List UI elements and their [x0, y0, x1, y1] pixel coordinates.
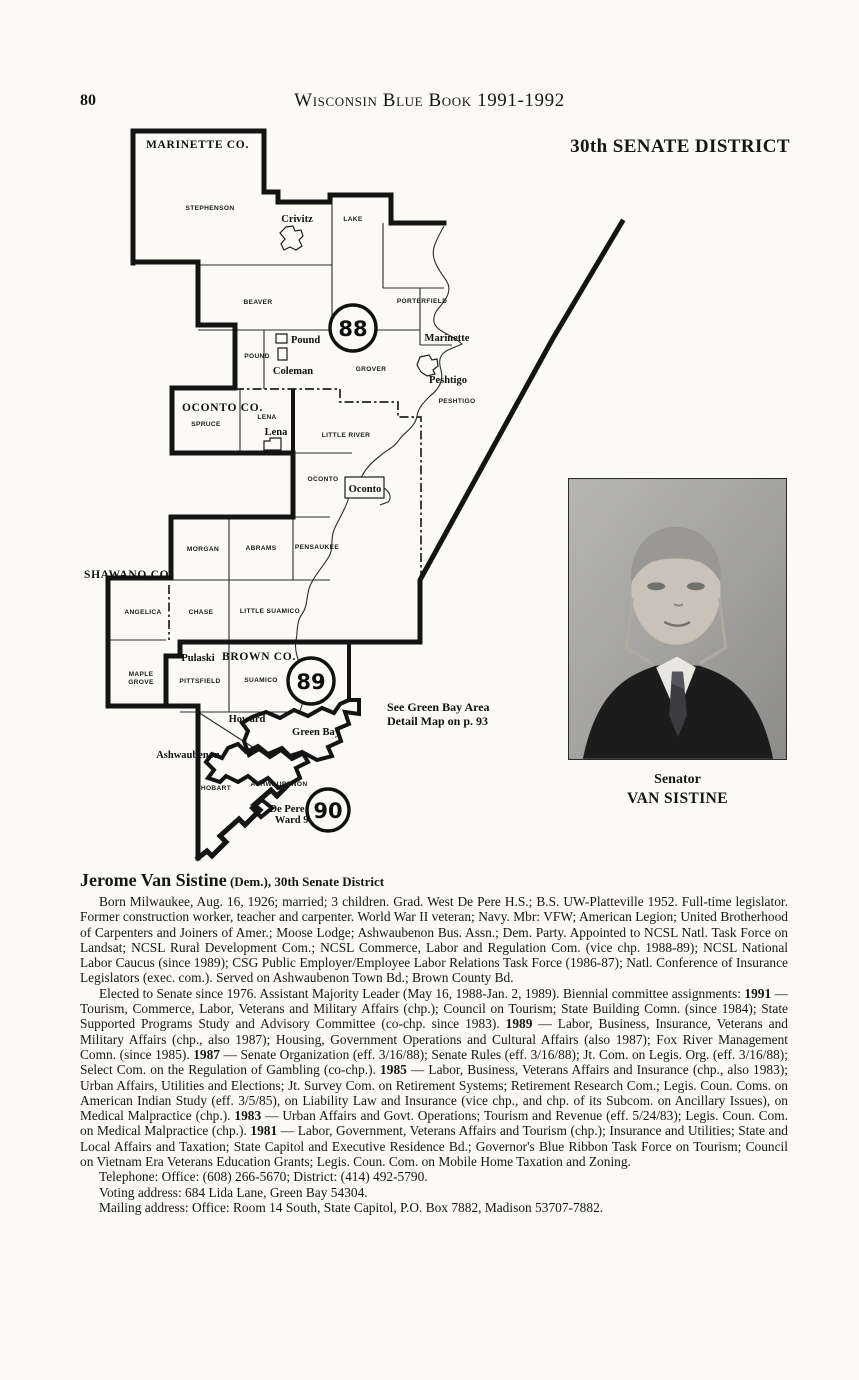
town-label-pound: POUND [244, 353, 270, 360]
town-label-maple-grove-line1: MAPLE [129, 671, 154, 678]
bio-paragraph-committees: Elected to Senate since 1976. Assistant … [80, 986, 788, 1170]
bio-telephone: Telephone: Office: (608) 266-5670; Distr… [80, 1169, 788, 1184]
lena-village-shape [264, 438, 281, 450]
town-label-morgan: MORGAN [187, 546, 219, 553]
place-label-coleman: Coleman [273, 366, 313, 377]
town-label-stephenson: STEPHENSON [186, 205, 235, 212]
place-label-howard: Howard [229, 714, 266, 725]
book-page: 80 Wisconsin Blue Book 1991-1992 30th SE… [0, 0, 859, 1380]
crivitz-village-shape [280, 226, 303, 250]
senator-photo [568, 478, 787, 760]
town-label-beaver: BEAVER [243, 299, 272, 306]
town-label-porterfield: PORTERFIELD [397, 298, 447, 305]
detail-map-note-line1: See Green Bay Area [387, 700, 490, 714]
photo-caption: Senator VAN SISTINE [568, 771, 787, 808]
town-label-lena: LENA [257, 414, 276, 421]
district-89-marker: 89 [288, 658, 334, 704]
district-90-marker: 90 [307, 789, 349, 831]
town-label-little-suamico: LITTLE SUAMICO [240, 608, 300, 615]
county-label-brown: BROWN CO. [222, 651, 296, 663]
town-label-ashwaubenon: ASHWAUBENON [251, 781, 308, 788]
district-90-number: 90 [313, 799, 342, 823]
place-label-de-pere-line2: Ward 9. [275, 815, 312, 826]
town-label-suamico: SUAMICO [244, 677, 278, 684]
town-label-maple-grove-line2: GROVE [128, 679, 154, 686]
bio-mailing-address: Mailing address: Office: Room 14 South, … [80, 1200, 788, 1215]
oconto-city-box: Oconto [345, 477, 390, 505]
town-label-pensaukee: PENSAUKEE [295, 544, 339, 551]
district-88-marker: 88 [330, 305, 376, 351]
place-label-lena: Lena [265, 427, 289, 438]
bio-heading-suffix: (Dem.), 30th Senate District [227, 874, 384, 889]
town-label-pittsfield: PITTSFIELD [179, 678, 220, 685]
biography-section: Jerome Van Sistine (Dem.), 30th Senate D… [80, 870, 788, 1215]
place-label-pound: Pound [291, 335, 320, 346]
pound-village-shape [276, 334, 287, 360]
district-boundary-west [108, 262, 293, 858]
town-label-oconto: OCONTO [308, 476, 339, 483]
town-label-grover: GROVER [356, 366, 387, 373]
detail-map-note-line2: Detail Map on p. 93 [387, 714, 488, 728]
town-label-little-river: LITTLE RIVER [322, 432, 371, 439]
town-label-chase: CHASE [189, 609, 214, 616]
peshtigo-city-shape [417, 355, 438, 376]
county-label-shawano: SHAWANO CO. [84, 569, 173, 581]
town-label-angelica: ANGELICA [124, 609, 161, 616]
place-label-peshtigo: Peshtigo [429, 375, 467, 386]
bio-heading: Jerome Van Sistine (Dem.), 30th Senate D… [80, 870, 788, 892]
bio-voting-address: Voting address: 684 Lida Lane, Green Bay… [80, 1185, 788, 1200]
senator-portrait-illustration [569, 479, 786, 759]
place-label-crivitz: Crivitz [281, 214, 313, 225]
county-label-marinette: MARINETTE CO. [146, 139, 249, 151]
photo-caption-title: Senator [568, 771, 787, 789]
place-label-pulaski: Pulaski [181, 653, 214, 664]
book-title: Wisconsin Blue Book 1991-1992 [0, 90, 859, 112]
district-boundary-east-diagonal [166, 222, 622, 706]
district-88-number: 88 [338, 317, 367, 341]
town-label-peshtigo: PESHTIGO [439, 398, 476, 405]
county-label-oconto: OCONTO CO. [182, 402, 263, 414]
bio-paragraph-background: Born Milwaukee, Aug. 16, 1926; married; … [80, 894, 788, 986]
photo-caption-name: VAN SISTINE [568, 789, 787, 808]
place-label-marinette: Marinette [425, 333, 470, 344]
place-label-ashwaubenon: Ashwaubenon [156, 750, 220, 761]
town-boundary-lines [108, 196, 452, 748]
place-label-oconto: Oconto [349, 484, 382, 495]
place-label-de-pere-line1: De Pere [269, 804, 304, 815]
town-label-abrams: ABRAMS [245, 545, 276, 552]
bio-heading-name: Jerome Van Sistine [80, 870, 227, 890]
town-label-spruce: SPRUCE [191, 421, 221, 428]
town-label-hobart: HOBART [201, 785, 231, 792]
district-map: Oconto 88 89 90 MARINETTE CO. OCONTO CO.… [80, 118, 630, 865]
place-label-green-bay: Green Bay [292, 727, 341, 738]
district-89-number: 89 [296, 670, 325, 694]
town-label-lake: LAKE [343, 216, 363, 223]
